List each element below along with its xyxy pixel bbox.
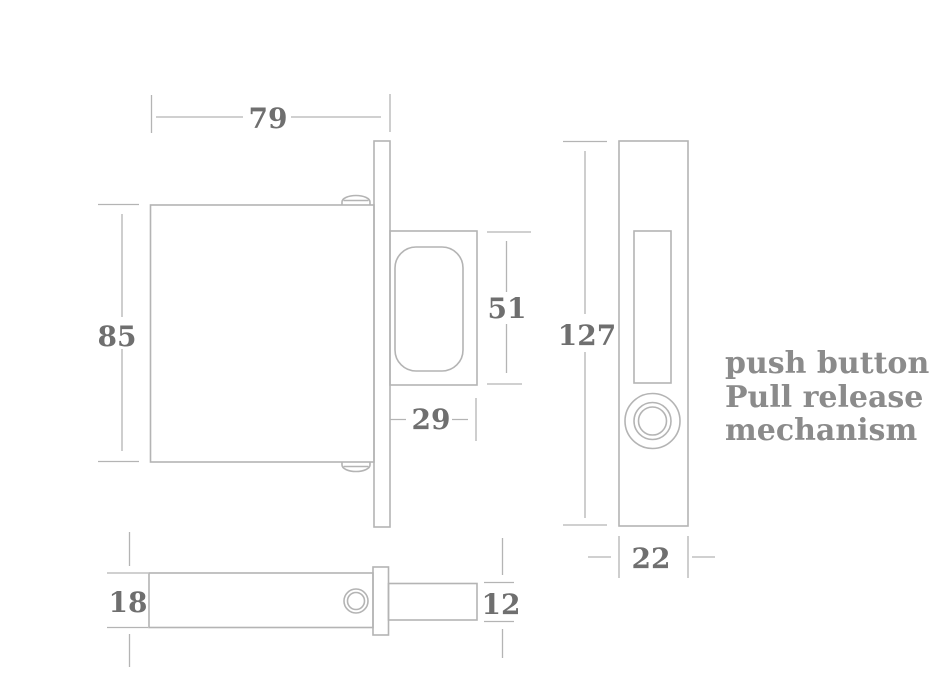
drawing-svg: 79 85 51 29 127 22 18 12 push button Pul… xyxy=(0,0,930,697)
screw-lug-bottom xyxy=(342,462,370,472)
button-bottom-inner xyxy=(348,593,365,610)
latch-dimension-drawing: 79 85 51 29 127 22 18 12 push button Pul… xyxy=(0,0,930,697)
faceplate-front xyxy=(619,141,688,526)
push-button-inner-ring xyxy=(639,407,667,435)
dimension-lines xyxy=(98,94,715,667)
latch-case-bottom xyxy=(149,573,373,628)
dim-label-bolt-projection: 29 xyxy=(412,403,451,436)
latch-case-side xyxy=(151,205,375,462)
push-button-mid-ring xyxy=(634,403,671,440)
faceplate-bottom xyxy=(373,567,389,635)
part-outlines xyxy=(149,141,688,635)
annotation-line-1: push button xyxy=(725,346,929,381)
faceplate-side xyxy=(374,141,390,527)
dim-label-case-thickness: 18 xyxy=(109,586,148,619)
dim-label-body-height: 85 xyxy=(98,320,137,353)
annotation-line-2: Pull release xyxy=(725,380,923,415)
annotation: push button Pull release mechanism xyxy=(725,346,929,448)
dim-label-faceplate-height: 127 xyxy=(558,319,616,352)
dim-label-bolt-height: 51 xyxy=(488,292,527,325)
annotation-line-3: mechanism xyxy=(725,413,917,448)
dim-label-faceplate-width: 22 xyxy=(632,542,671,575)
bolt-side xyxy=(390,231,477,385)
screw-lug-top xyxy=(342,196,370,206)
bolt-bottom xyxy=(389,584,478,621)
front-view xyxy=(619,141,688,526)
dim-label-body-width: 79 xyxy=(249,102,288,135)
bolt-slot-front xyxy=(634,231,671,383)
side-view xyxy=(151,141,478,527)
bottom-view xyxy=(149,567,477,635)
bolt-face-side xyxy=(395,247,463,371)
dim-label-bolt-thickness: 12 xyxy=(482,588,521,621)
